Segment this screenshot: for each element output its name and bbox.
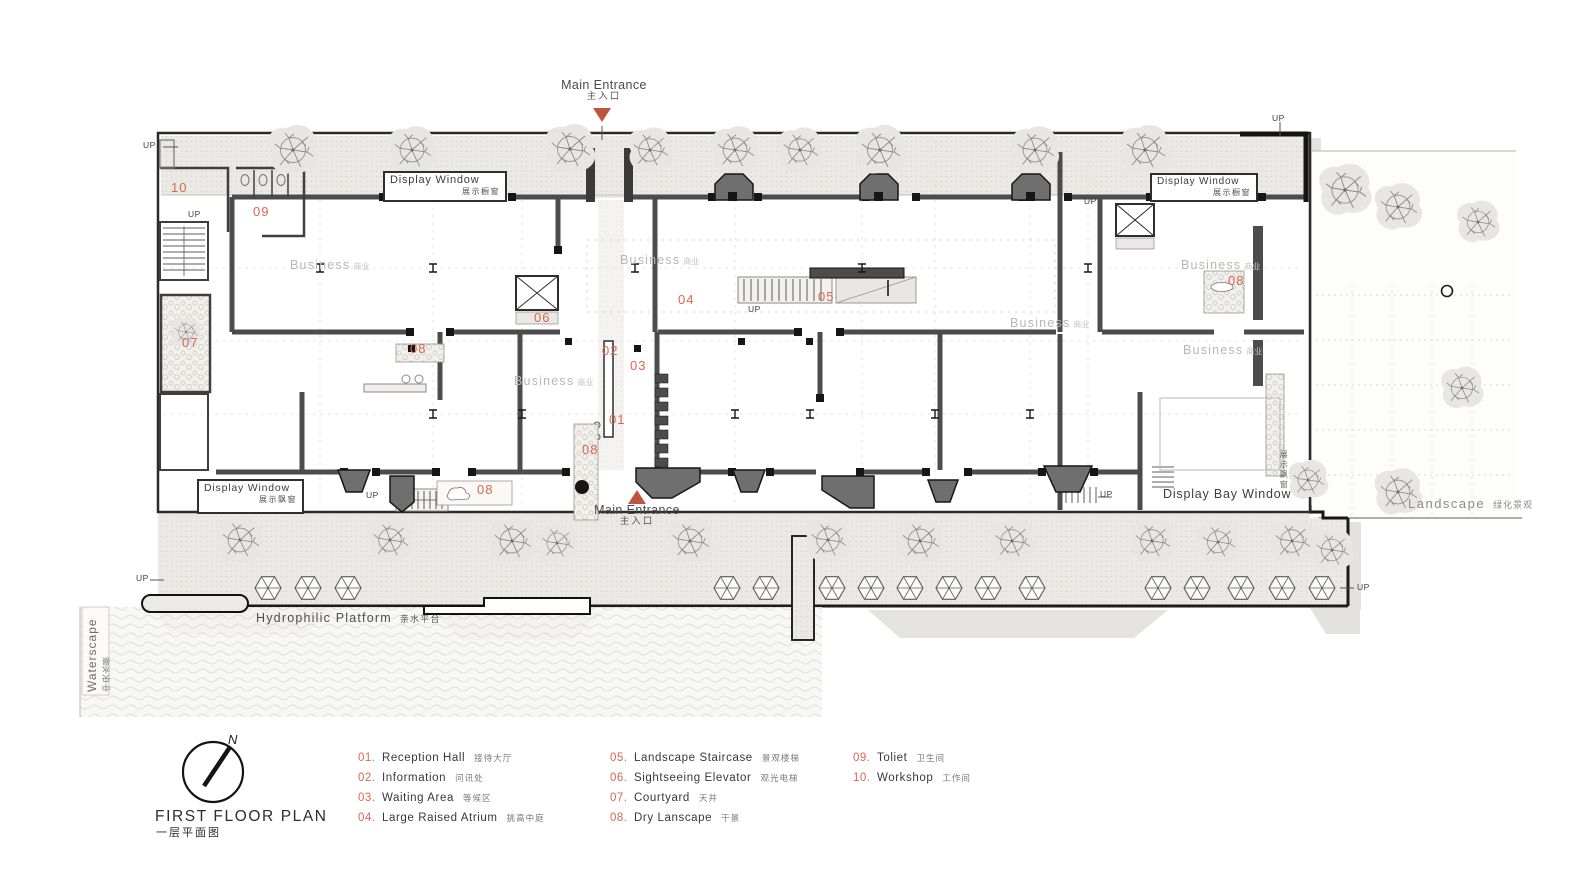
tree-icon xyxy=(778,127,823,171)
tree-icon xyxy=(389,126,436,172)
marker-09-toilet: 09 xyxy=(253,205,269,220)
legend-item: 04.Large Raised Atrium挑高中庭 xyxy=(358,812,545,824)
landscape-label: Landscape绿化景观 xyxy=(1408,497,1533,512)
legend-item: 07.Courtyard天井 xyxy=(610,792,718,804)
legend-item: 02.Information问讯处 xyxy=(358,772,484,784)
platform-pill xyxy=(142,595,248,612)
tree-icon xyxy=(1197,521,1239,562)
tree-icon xyxy=(1121,125,1171,174)
marker-08-dry-landscape: 08 xyxy=(582,443,598,458)
up-label: UP xyxy=(143,141,156,151)
tree-icon xyxy=(1441,367,1483,408)
up-label: UP xyxy=(1357,583,1370,593)
bench-icon xyxy=(364,384,426,392)
tree-icon xyxy=(628,127,673,171)
tree-icon xyxy=(1457,201,1499,242)
marker-08-dry-landscape: 08 xyxy=(1228,274,1244,289)
reception-counter xyxy=(655,374,668,467)
tree-icon xyxy=(806,517,851,561)
tree-icon xyxy=(368,517,413,561)
display-window-label-zh: 展示橱窗 xyxy=(390,186,500,197)
main-entrance-zh: 主入口 xyxy=(567,517,707,528)
marker-02-information: 02 xyxy=(602,344,618,359)
up-label: UP xyxy=(748,305,761,315)
up-label: UP xyxy=(366,491,379,501)
business-label: Business商业 xyxy=(620,253,699,267)
up-label: UP xyxy=(1100,490,1113,500)
display-window-label: Display Window xyxy=(1157,176,1251,187)
elevator-icon-right xyxy=(1116,204,1154,249)
tree-icon xyxy=(990,518,1035,562)
main-entrance-label-top: Main Entrance 主入口 xyxy=(534,78,674,103)
display-window-box-bottom-left: Display Window 展示飘窗 xyxy=(197,479,304,514)
floor-plan-sheet: Main Entrance 主入口 Main Entrance 主入口 Disp… xyxy=(0,0,1582,891)
display-bay-window-label: Display Bay Window xyxy=(1163,487,1291,501)
display-window-label-zh: 展示飘窗 xyxy=(204,494,297,505)
legend-item: 10.Workshop工作间 xyxy=(853,772,971,784)
business-label: Business商业 xyxy=(514,374,593,388)
marker-07-courtyard: 07 xyxy=(182,336,198,351)
display-window-label: Display Window xyxy=(390,174,500,186)
marker-05-staircase: 05 xyxy=(818,290,834,305)
tree-icon xyxy=(1130,518,1175,562)
marker-04-atrium: 04 xyxy=(678,293,694,308)
tree-icon xyxy=(1319,164,1371,215)
tree-icon xyxy=(856,125,906,174)
display-window-label: Display Window xyxy=(204,482,297,494)
marker-06-elevator: 06 xyxy=(534,311,550,326)
tree-icon xyxy=(489,517,536,563)
hydrophilic-platform-label: Hydrophilic Platform亲水平台 xyxy=(256,611,441,625)
tree-icon xyxy=(1270,518,1315,562)
tree-icon xyxy=(897,517,944,563)
business-label: Business商业 xyxy=(1010,316,1089,330)
garden-point-marker xyxy=(1442,286,1453,297)
legend-item: 06.Sightseeing Elevator观光电梯 xyxy=(610,772,799,784)
compass-icon xyxy=(183,742,243,802)
tree-icon xyxy=(537,523,577,562)
business-label: Business商业 xyxy=(1181,258,1260,272)
waterscape-area xyxy=(80,607,822,717)
page-title: FIRST FLOOR PLAN xyxy=(155,808,328,826)
display-window-box-top-left: Display Window 展示橱窗 xyxy=(383,171,507,202)
legend-item: 08.Dry Lanscape干景 xyxy=(610,812,740,824)
tree-icon xyxy=(217,516,264,562)
tree-icon xyxy=(269,125,319,174)
legend-item: 05.Landscape Staircase景观楼梯 xyxy=(610,752,800,764)
legend-item: 01.Reception Hall接待大厅 xyxy=(358,752,512,764)
marker-08-dry-landscape: 08 xyxy=(477,483,493,498)
business-label: Business商业 xyxy=(1183,343,1262,357)
main-entrance-zh: 主入口 xyxy=(534,92,674,103)
up-label: UP xyxy=(136,574,149,584)
tree-icon xyxy=(546,124,596,173)
marker-10-workshop: 10 xyxy=(171,181,187,196)
legend-item: 03.Waiting Area等候区 xyxy=(358,792,492,804)
marker-03-waiting: 03 xyxy=(630,359,646,374)
up-label: UP xyxy=(1084,197,1097,207)
tree-icon xyxy=(1012,126,1059,172)
waterscape-label: Waterscape中央水景 xyxy=(86,610,112,692)
marker-01-reception: 01 xyxy=(609,413,625,428)
tree-icon xyxy=(1375,183,1422,229)
display-window-box-top-right: Display Window 展示橱窗 xyxy=(1150,173,1258,202)
legend-item: 09.Toliet卫生间 xyxy=(853,752,945,764)
up-label: UP xyxy=(188,210,201,220)
business-label: Business商业 xyxy=(290,258,369,272)
up-label: UP xyxy=(1272,114,1285,124)
tree-icon xyxy=(712,126,759,172)
compass-north-label: N xyxy=(228,733,238,748)
display-window-label-zh: 展示橱窗 xyxy=(1157,187,1251,198)
entrance-triangle-icon-top xyxy=(593,108,611,122)
main-entrance-label-bottom: Main Entrance 主入口 xyxy=(567,503,707,528)
marker-08-dry-landscape: 08 xyxy=(410,342,426,357)
page-title-zh: 一层平面图 xyxy=(156,827,221,840)
display-bay-window-label-zh: 展示飘窗 xyxy=(1279,450,1288,508)
entrance-corridor xyxy=(593,136,627,198)
tree-icon xyxy=(1311,529,1353,570)
tree-icon xyxy=(1288,460,1328,499)
